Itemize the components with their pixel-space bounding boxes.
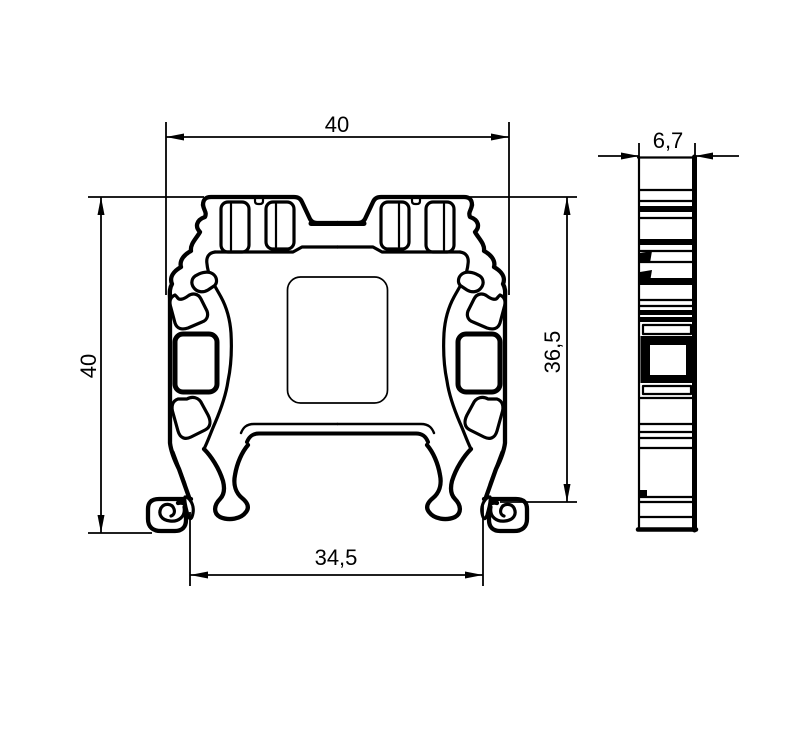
side-view bbox=[638, 157, 696, 530]
contact-slit bbox=[643, 325, 691, 334]
contact-window bbox=[650, 345, 686, 375]
drawing-page: 40 40 36,5 34,5 bbox=[0, 0, 800, 737]
dim-label-left-height: 40 bbox=[76, 354, 101, 378]
dim-label-side-depth: 6,7 bbox=[653, 128, 684, 153]
strut-inner-edge bbox=[173, 452, 185, 484]
center-window bbox=[288, 277, 388, 403]
dim-top-width: 40 bbox=[166, 112, 509, 295]
arrowhead bbox=[621, 153, 639, 160]
profile-band bbox=[640, 206, 694, 212]
profile-band bbox=[640, 278, 694, 285]
profile-band bbox=[640, 239, 694, 245]
front-view-right-half bbox=[338, 197, 528, 531]
tower-slot bbox=[221, 202, 249, 252]
side-window bbox=[175, 334, 217, 392]
front-view bbox=[148, 197, 527, 531]
tower-slot bbox=[266, 202, 294, 249]
drawing-canvas: 40 40 36,5 34,5 bbox=[0, 0, 800, 737]
arrowhead bbox=[564, 484, 571, 502]
front-view-left-half bbox=[148, 197, 338, 531]
spring-void-small bbox=[192, 272, 217, 292]
mounting-foot bbox=[204, 445, 248, 519]
arrowhead bbox=[465, 572, 483, 579]
arrowhead bbox=[98, 197, 105, 215]
arrowhead bbox=[564, 197, 571, 215]
bridge-bar-bottom bbox=[247, 434, 338, 443]
arrowhead bbox=[98, 515, 105, 533]
arrowhead bbox=[166, 134, 184, 141]
arrowhead bbox=[190, 572, 208, 579]
spring-void-upper bbox=[170, 294, 208, 329]
side-profile-lines bbox=[640, 190, 695, 517]
profile-band bbox=[640, 310, 694, 315]
spring-void-lower bbox=[172, 397, 210, 438]
contact-slit bbox=[643, 386, 691, 394]
arrowhead bbox=[695, 153, 713, 160]
dim-label-bottom-width: 34,5 bbox=[315, 545, 358, 570]
dim-label-right-height: 36,5 bbox=[540, 331, 565, 374]
din-rail-hook-curl bbox=[160, 504, 184, 521]
dim-label-top-width: 40 bbox=[325, 112, 349, 137]
arrowhead bbox=[491, 134, 509, 141]
profile-band bbox=[640, 317, 694, 322]
